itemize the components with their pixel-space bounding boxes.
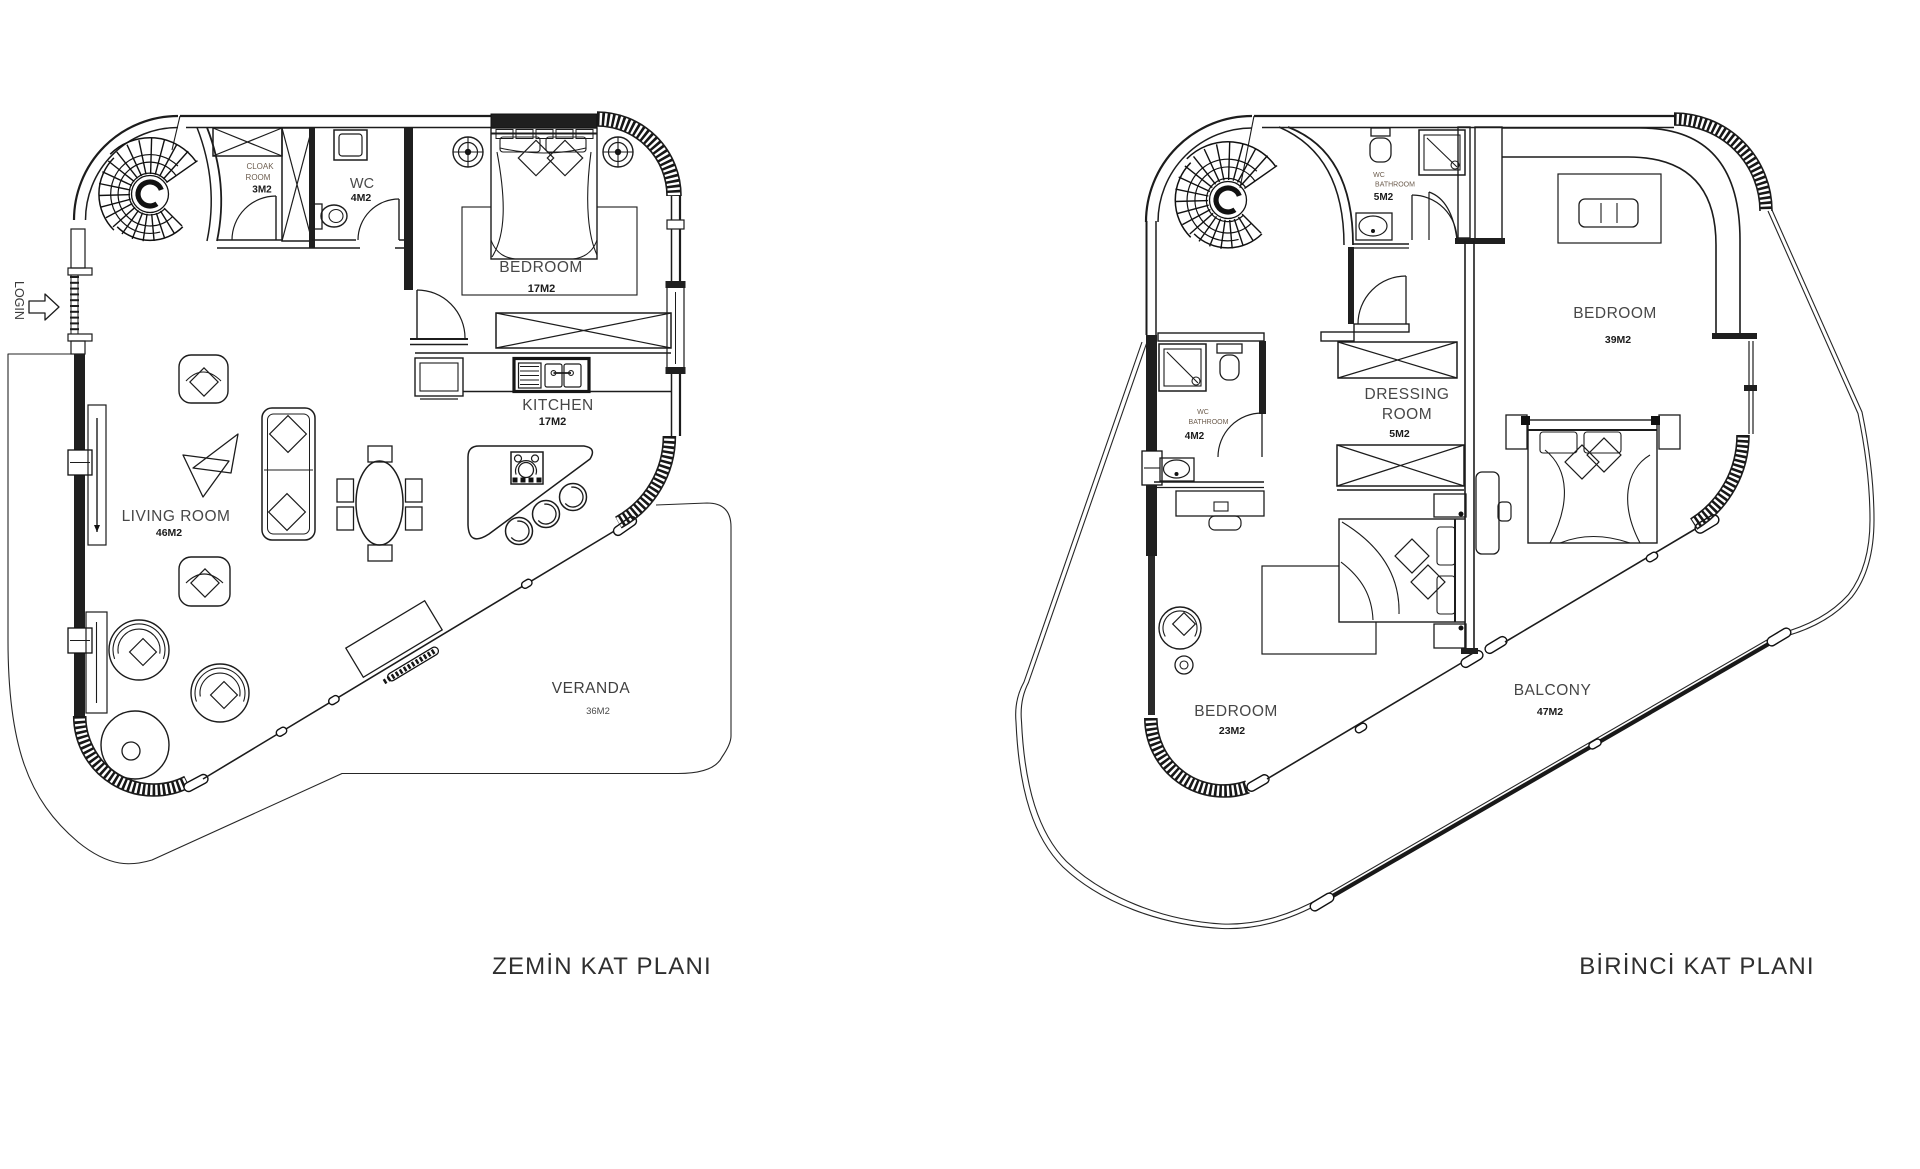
svg-text:BATHROOM: BATHROOM	[1375, 182, 1415, 189]
svg-text:39M2: 39M2	[1605, 334, 1631, 346]
svg-text:4M2: 4M2	[351, 192, 372, 204]
svg-text:47M2: 47M2	[1537, 706, 1563, 718]
svg-text:17M2: 17M2	[539, 416, 567, 428]
svg-text:3M2: 3M2	[252, 185, 272, 196]
svg-text:BATHROOM: BATHROOM	[1189, 419, 1229, 426]
svg-text:5M2: 5M2	[1374, 192, 1394, 203]
svg-text:CLOAK: CLOAK	[246, 162, 274, 171]
svg-text:KITCHEN: KITCHEN	[522, 397, 594, 414]
svg-text:WC: WC	[1373, 172, 1385, 179]
svg-text:LIVING ROOM: LIVING ROOM	[122, 508, 231, 525]
svg-text:DRESSING: DRESSING	[1365, 386, 1450, 403]
svg-text:WC: WC	[350, 176, 374, 192]
svg-text:17M2: 17M2	[528, 283, 556, 295]
svg-text:36M2: 36M2	[586, 706, 610, 717]
svg-text:ROOM: ROOM	[1382, 406, 1432, 423]
svg-text:VERANDA: VERANDA	[552, 680, 631, 697]
svg-text:5M2: 5M2	[1389, 428, 1410, 440]
svg-text:ROOM: ROOM	[246, 173, 271, 182]
svg-text:ZEMİN KAT PLANI: ZEMİN KAT PLANI	[492, 953, 712, 980]
svg-text:23M2: 23M2	[1219, 725, 1245, 737]
svg-text:BEDROOM: BEDROOM	[499, 259, 583, 276]
svg-text:BEDROOM: BEDROOM	[1573, 305, 1657, 322]
svg-text:LOGIN: LOGIN	[12, 281, 26, 320]
svg-text:BALCONY: BALCONY	[1514, 682, 1592, 699]
svg-text:BİRİNCİ KAT PLANI: BİRİNCİ KAT PLANI	[1579, 953, 1815, 980]
svg-text:WC: WC	[1197, 409, 1209, 416]
svg-text:4M2: 4M2	[1185, 431, 1205, 442]
svg-text:46M2: 46M2	[156, 527, 182, 539]
svg-text:BEDROOM: BEDROOM	[1194, 703, 1278, 720]
